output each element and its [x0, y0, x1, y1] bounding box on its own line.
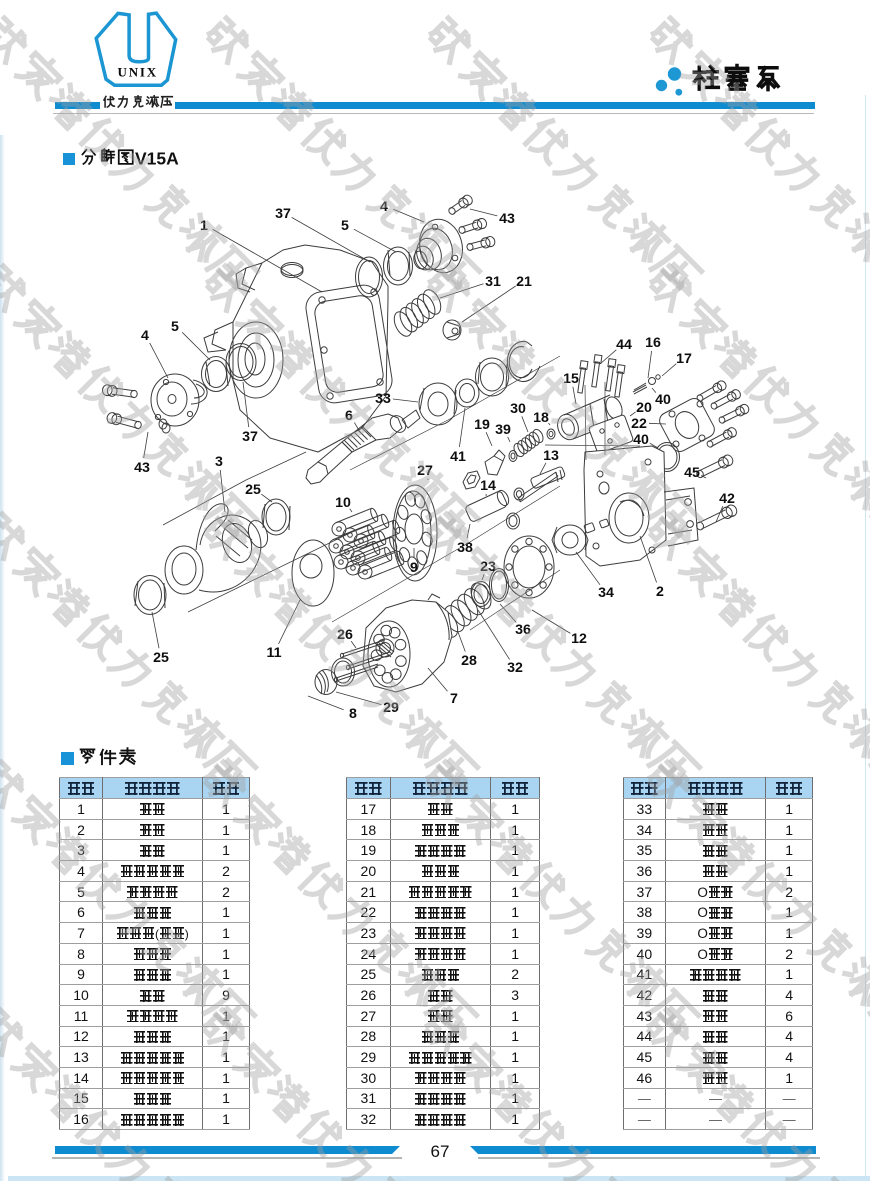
svg-text:13: 13 [543, 448, 559, 464]
svg-text:44: 44 [616, 337, 632, 353]
svg-text:33: 33 [375, 391, 391, 407]
svg-text:37: 37 [242, 429, 258, 445]
svg-text:5: 5 [171, 319, 179, 335]
svg-text:43: 43 [134, 460, 150, 476]
svg-text:36: 36 [515, 622, 531, 638]
svg-text:25: 25 [245, 482, 261, 498]
svg-text:20: 20 [636, 400, 652, 416]
svg-text:41: 41 [450, 449, 466, 465]
svg-text:19: 19 [474, 417, 490, 433]
svg-text:30: 30 [510, 401, 526, 417]
svg-text:11: 11 [267, 645, 282, 661]
svg-text:38: 38 [457, 540, 473, 556]
svg-text:16: 16 [645, 335, 661, 351]
svg-text:32: 32 [507, 660, 523, 676]
svg-text:7: 7 [450, 691, 458, 707]
svg-text:21: 21 [516, 274, 532, 290]
svg-text:26: 26 [337, 627, 353, 643]
svg-text:39: 39 [495, 422, 511, 438]
svg-text:40: 40 [633, 432, 649, 448]
svg-text:12: 12 [571, 631, 587, 647]
svg-text:4: 4 [380, 199, 388, 215]
svg-text:34: 34 [598, 585, 614, 601]
svg-text:40: 40 [655, 392, 671, 408]
svg-text:22: 22 [631, 416, 647, 432]
svg-text:28: 28 [461, 653, 477, 669]
svg-text:27: 27 [417, 463, 433, 479]
svg-text:15: 15 [563, 371, 579, 387]
svg-text:45: 45 [684, 465, 700, 481]
svg-text:25: 25 [153, 650, 169, 666]
svg-text:4: 4 [141, 328, 149, 344]
svg-text:37: 37 [275, 206, 291, 222]
svg-text:10: 10 [335, 495, 351, 511]
svg-text:9: 9 [410, 560, 418, 576]
svg-text:42: 42 [719, 491, 735, 507]
svg-text:14: 14 [480, 478, 496, 494]
svg-text:23: 23 [480, 559, 496, 575]
svg-text:31: 31 [485, 274, 501, 290]
svg-text:29: 29 [383, 700, 399, 716]
svg-text:2: 2 [656, 584, 664, 600]
svg-text:3: 3 [215, 454, 223, 470]
svg-text:V15A: V15A [135, 149, 179, 169]
svg-text:5: 5 [341, 218, 349, 234]
svg-text:8: 8 [349, 706, 357, 722]
svg-text:6: 6 [345, 408, 353, 424]
svg-text:43: 43 [499, 211, 515, 227]
svg-text:UNIX: UNIX [118, 65, 158, 80]
svg-text:17: 17 [676, 351, 692, 367]
svg-text:1: 1 [200, 218, 208, 234]
svg-text:18: 18 [533, 410, 549, 426]
